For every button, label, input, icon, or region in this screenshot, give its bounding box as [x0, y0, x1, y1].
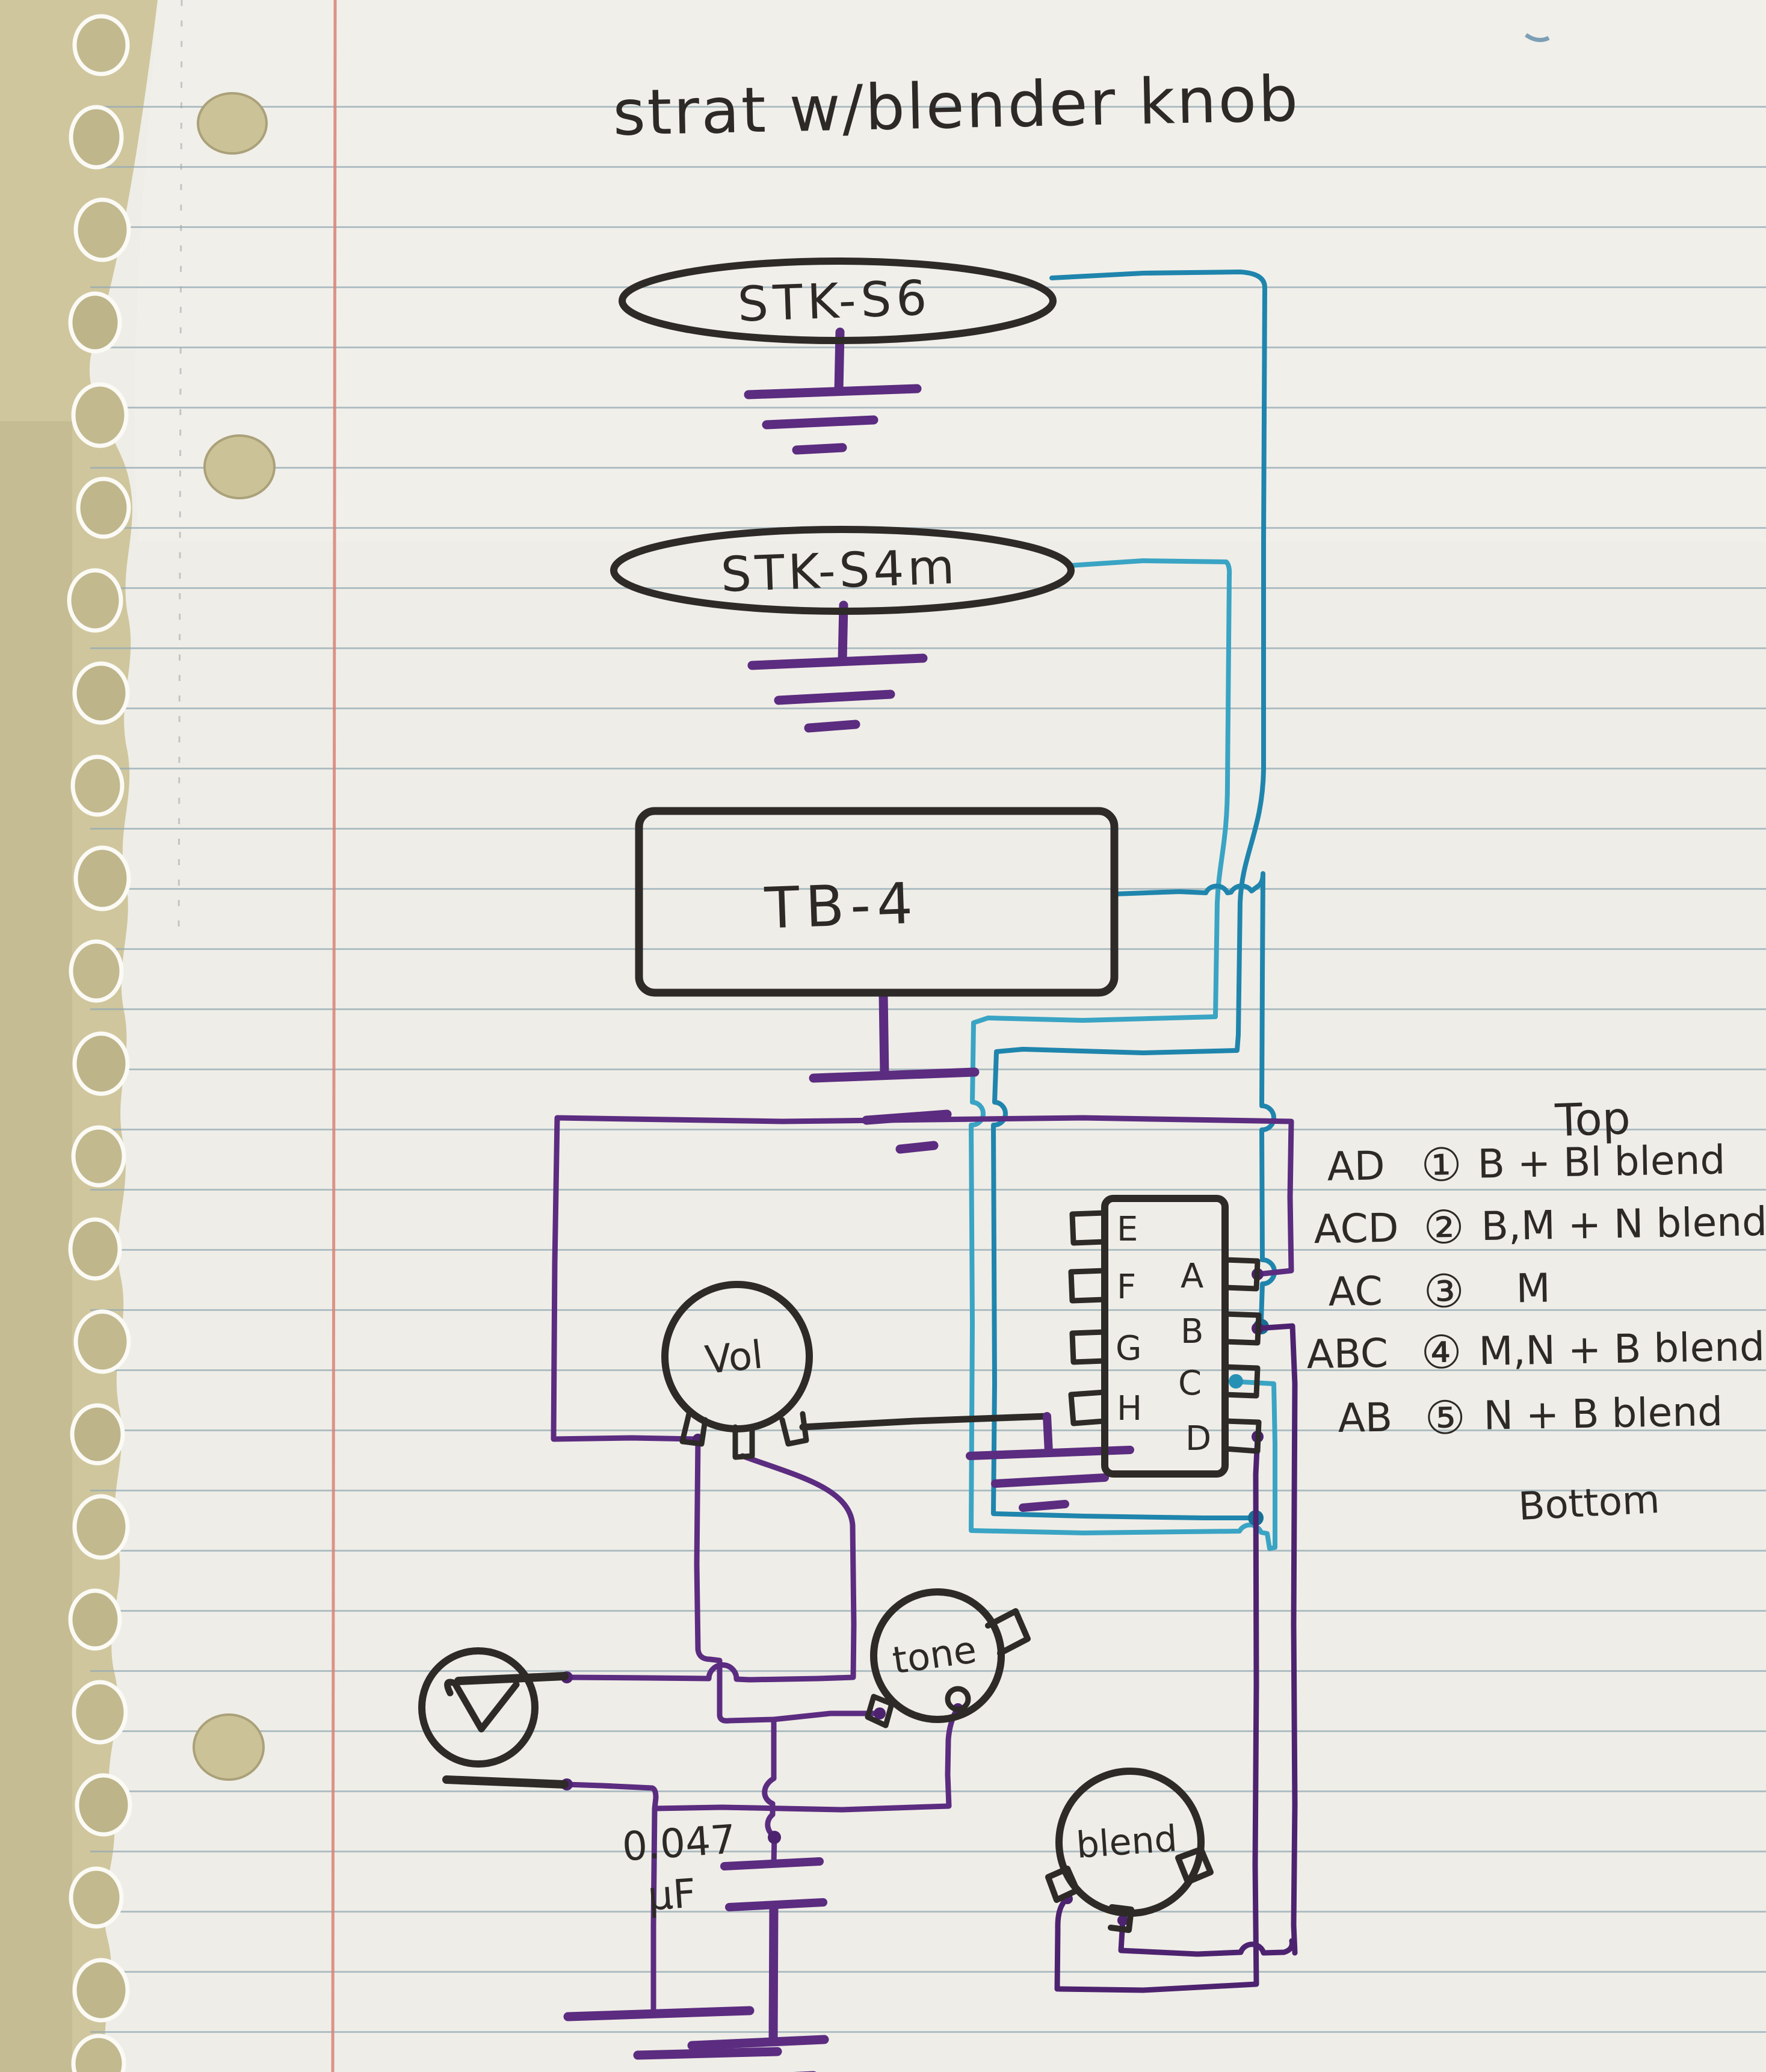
- legend-row-4-lugs: ABC: [1306, 1330, 1389, 1378]
- punch-hole-top: [198, 93, 267, 153]
- switch-lug-e: E: [1117, 1210, 1138, 1249]
- legend-row-3-description: M: [1516, 1265, 1551, 1312]
- legend-row-3: AC ③ M: [1328, 1263, 1551, 1320]
- pickup-stk-s4m-label: STK-S4m: [720, 538, 959, 603]
- legend-row-1-lugs: AD: [1327, 1142, 1385, 1190]
- capacitor-unit: µF: [646, 1870, 697, 1919]
- pickup-tb4-label: TB-4: [763, 871, 919, 942]
- volume-pot-label: Vol: [703, 1333, 765, 1383]
- legend-row-5-lugs: AB: [1338, 1394, 1393, 1441]
- punch-hole-middle: [205, 436, 274, 498]
- legend-row-3-position: ③: [1423, 1264, 1465, 1318]
- legend-row-4-description: M,N + B blend: [1478, 1324, 1765, 1375]
- legend-bottom-label: Bottom: [1517, 1478, 1661, 1529]
- punch-hole-bottom: [194, 1715, 264, 1780]
- legend-row-4-position: ④: [1421, 1325, 1463, 1380]
- switch-lug-c: C: [1178, 1364, 1202, 1403]
- legend-row-1-description: B + Bl blend: [1477, 1136, 1726, 1187]
- jack-hot-lug: [458, 1676, 564, 1681]
- capacitor-value: 0.047: [620, 1816, 737, 1870]
- legend-row-5-description: N + B blend: [1483, 1389, 1723, 1439]
- legend-row-3-lugs: AC: [1328, 1268, 1383, 1315]
- switch-lug-d: D: [1185, 1419, 1211, 1458]
- legend-row-2-lugs: ACD: [1314, 1205, 1399, 1253]
- legend-row-5-position: ⑤: [1424, 1390, 1466, 1445]
- page-title: strat w/blender knob: [612, 62, 1300, 150]
- switch-lug-f: F: [1117, 1268, 1136, 1307]
- switch-lug-a: A: [1181, 1257, 1203, 1296]
- blend-pot-label: blend: [1075, 1818, 1178, 1867]
- desk-shadow-strip: [0, 421, 72, 2072]
- legend-row-1-position: ①: [1421, 1138, 1463, 1192]
- wiring-diagram-svg: 0.047 µF strat w/blender knob STK-S6 STK…: [0, 0, 1766, 2072]
- jack-sleeve-lug: [446, 1780, 564, 1784]
- notebook-page-photo: 0.047 µF strat w/blender knob STK-S6 STK…: [0, 0, 1766, 2072]
- legend-row-2-description: B,M + N blend: [1481, 1198, 1766, 1250]
- junction-dot-lug-c: [1229, 1374, 1243, 1389]
- switch-lug-b: B: [1181, 1312, 1203, 1351]
- switch-lug-g: G: [1116, 1329, 1141, 1368]
- pickup-stk-s6-label: STK-S6: [736, 270, 932, 332]
- switch-lug-h: H: [1117, 1389, 1142, 1428]
- legend-row-2-position: ②: [1423, 1200, 1465, 1254]
